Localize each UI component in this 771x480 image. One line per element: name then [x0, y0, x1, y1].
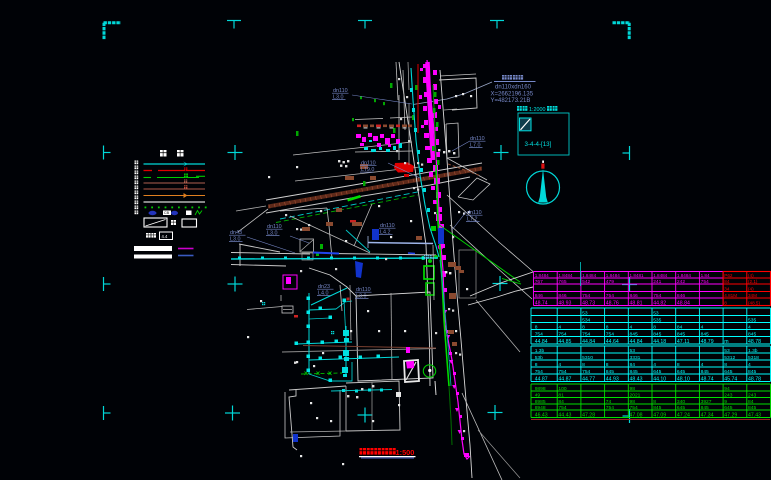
svg-text:845: 845 — [701, 369, 709, 375]
svg-text:845: 845 — [653, 331, 661, 337]
svg-text:845: 845 — [630, 331, 638, 337]
svg-text:8: 8 — [606, 362, 609, 368]
svg-text:8: 8 — [582, 324, 585, 330]
svg-text:48.76: 48.76 — [606, 300, 619, 306]
svg-text:340: 340 — [677, 399, 685, 405]
svg-text:4: 4 — [701, 324, 704, 330]
svg-text:84: 84 — [724, 279, 730, 284]
svg-text:845: 845 — [630, 369, 638, 375]
svg-text:48.84: 48.84 — [677, 300, 690, 306]
svg-text:m: m — [724, 339, 728, 345]
svg-text:754: 754 — [535, 331, 543, 337]
svg-text:4: 4 — [748, 362, 751, 368]
svg-text:74: 74 — [606, 399, 612, 405]
svg-text:49: 49 — [535, 392, 541, 398]
svg-text:846: 846 — [535, 293, 543, 299]
svg-text:767: 767 — [535, 279, 543, 285]
svg-text:479: 479 — [606, 279, 614, 285]
svg-text:48.10: 48.10 — [677, 376, 690, 382]
svg-text:1.8484: 1.8484 — [535, 273, 549, 278]
svg-text:8: 8 — [653, 399, 656, 405]
svg-text:754: 754 — [653, 293, 661, 299]
svg-text:48.73: 48.73 — [582, 300, 595, 306]
svg-text:846: 846 — [558, 293, 566, 299]
svg-text:8985: 8985 — [535, 399, 546, 405]
svg-text:44.84: 44.84 — [582, 339, 595, 345]
svg-text:645: 645 — [677, 405, 685, 411]
svg-text:1.8484: 1.8484 — [677, 273, 691, 278]
svg-text:5312: 5312 — [724, 355, 735, 361]
svg-text:1.84: 1.84 — [701, 273, 710, 278]
svg-text:8: 8 — [606, 324, 609, 330]
svg-text:34M: 34M — [748, 293, 757, 298]
svg-text:754: 754 — [582, 369, 590, 375]
svg-text:241: 241 — [653, 279, 661, 285]
svg-text:48.93: 48.93 — [558, 300, 571, 306]
svg-text:44.93: 44.93 — [606, 376, 619, 382]
svg-text:CB: CB — [164, 211, 170, 215]
svg-text:846: 846 — [677, 293, 685, 299]
svg-text:645: 645 — [724, 405, 732, 411]
svg-text:46.43: 46.43 — [535, 412, 548, 418]
svg-text:8948: 8948 — [535, 405, 546, 411]
svg-text:44.85: 44.85 — [558, 339, 571, 345]
svg-text:(4): (4) — [748, 273, 754, 278]
svg-text:44.77: 44.77 — [582, 376, 595, 382]
svg-text:242: 242 — [677, 279, 685, 285]
svg-text:44.64: 44.64 — [606, 339, 619, 345]
svg-text:44.43: 44.43 — [558, 412, 571, 418]
svg-text:47.43: 47.43 — [748, 412, 761, 418]
svg-text:34: 34 — [724, 286, 730, 291]
svg-text:4: 4 — [558, 362, 561, 368]
svg-text:846: 846 — [630, 293, 638, 299]
svg-text:845: 845 — [748, 369, 756, 375]
svg-text:8: 8 — [535, 324, 538, 330]
svg-text:3-4-4-[13]: 3-4-4-[13] — [525, 141, 552, 148]
svg-text:44.18: 44.18 — [653, 339, 666, 345]
svg-text:754: 754 — [582, 293, 590, 299]
svg-text:48.81: 48.81 — [630, 300, 643, 306]
svg-text:100: 100 — [558, 386, 566, 392]
svg-text:535: 535 — [653, 317, 661, 323]
svg-text:4.4: 4.4 — [162, 234, 168, 239]
svg-text:48.74: 48.74 — [535, 300, 548, 306]
svg-text:dn110xdn160: dn110xdn160 — [495, 85, 532, 91]
svg-text:53: 53 — [582, 310, 588, 316]
svg-text:4: 4 — [701, 362, 704, 368]
svg-text:8: 8 — [724, 362, 727, 368]
svg-text:5310: 5310 — [582, 355, 593, 361]
svg-text:754: 754 — [701, 279, 709, 285]
svg-text:48.74: 48.74 — [701, 376, 714, 382]
svg-text:243: 243 — [748, 392, 756, 398]
svg-text:53b: 53b — [535, 355, 543, 361]
svg-text:754: 754 — [606, 331, 614, 337]
svg-text:3331: 3331 — [630, 355, 641, 361]
svg-text:542: 542 — [582, 279, 590, 285]
svg-text:4: 4 — [558, 324, 561, 330]
svg-text:53: 53 — [653, 310, 659, 316]
svg-text:754: 754 — [558, 369, 566, 375]
svg-text:44.87: 44.87 — [558, 376, 571, 382]
svg-text:1.8484: 1.8484 — [606, 273, 620, 278]
svg-text:754: 754 — [630, 405, 638, 411]
svg-text:8: 8 — [724, 300, 727, 305]
svg-text:(4): (4) — [748, 286, 754, 291]
svg-text:81: 81 — [558, 392, 564, 398]
svg-text:845: 845 — [701, 331, 709, 337]
svg-text:1.8484: 1.8484 — [653, 273, 667, 278]
svg-text:48.78: 48.78 — [748, 339, 761, 345]
svg-text:94: 94 — [724, 386, 730, 392]
svg-text:44.84: 44.84 — [630, 339, 643, 345]
svg-text:47.34: 47.34 — [701, 412, 714, 418]
svg-text:754: 754 — [606, 405, 614, 411]
svg-text:47.09: 47.09 — [653, 412, 666, 418]
svg-text:845: 845 — [653, 405, 661, 411]
svg-text:645: 645 — [724, 369, 732, 375]
svg-text:8: 8 — [535, 362, 538, 368]
svg-text:1:2000: 1:2000 — [529, 107, 546, 113]
svg-text:98: 98 — [630, 399, 636, 405]
svg-text:765: 765 — [558, 279, 566, 285]
svg-text:1.8484: 1.8484 — [558, 273, 572, 278]
svg-text:845: 845 — [701, 405, 709, 411]
svg-text:47.11: 47.11 — [677, 339, 690, 345]
svg-text:44.84: 44.84 — [535, 339, 548, 345]
svg-text:1.8481: 1.8481 — [630, 273, 644, 278]
svg-text:1:500: 1:500 — [396, 448, 415, 457]
svg-text:8: 8 — [677, 362, 680, 368]
svg-text:1.3b: 1.3b — [748, 348, 758, 354]
svg-text:45.74: 45.74 — [724, 376, 737, 382]
svg-text:(48.5): (48.5) — [748, 300, 760, 305]
svg-text:4: 4 — [748, 324, 751, 330]
svg-text:47.28: 47.28 — [582, 412, 595, 418]
svg-text:8: 8 — [582, 362, 585, 368]
svg-text:754: 754 — [558, 331, 566, 337]
svg-text:535: 535 — [748, 317, 756, 323]
svg-text:48.43: 48.43 — [630, 376, 643, 382]
svg-text:53: 53 — [630, 348, 636, 354]
svg-text:754: 754 — [606, 293, 614, 299]
svg-text:845: 845 — [677, 331, 685, 337]
svg-text:P62: P62 — [724, 273, 733, 278]
svg-text:Y=482173.21B: Y=482173.21B — [491, 98, 531, 104]
svg-text:47.24: 47.24 — [677, 412, 690, 418]
svg-text:84: 84 — [748, 399, 754, 405]
svg-text:44.82: 44.82 — [653, 300, 666, 306]
svg-text:4: 4 — [630, 324, 633, 330]
svg-text:9: 9 — [724, 399, 727, 405]
svg-text:754: 754 — [535, 369, 543, 375]
svg-text:645: 645 — [653, 369, 661, 375]
svg-text:1.3b: 1.3b — [535, 348, 545, 354]
svg-text:44.87: 44.87 — [535, 376, 548, 382]
svg-text:53: 53 — [724, 348, 730, 354]
svg-text:98: 98 — [630, 386, 636, 392]
svg-text:4.81M: 4.81M — [724, 293, 737, 298]
svg-text:5318: 5318 — [748, 355, 759, 361]
svg-text:44.10: 44.10 — [653, 376, 666, 382]
svg-text:48.79: 48.79 — [701, 339, 714, 345]
svg-text:84: 84 — [558, 399, 564, 405]
svg-text:754: 754 — [582, 331, 590, 337]
svg-text:9898: 9898 — [535, 386, 546, 392]
svg-text:4: 4 — [653, 362, 656, 368]
svg-text:84: 84 — [630, 362, 636, 368]
svg-text:534: 534 — [582, 317, 590, 323]
svg-text:8: 8 — [653, 324, 656, 330]
svg-text:(2.1): (2.1) — [748, 279, 758, 284]
svg-text:243: 243 — [724, 392, 732, 398]
svg-text:1.8484: 1.8484 — [582, 273, 596, 278]
svg-text:645: 645 — [677, 369, 685, 375]
svg-text:845: 845 — [748, 331, 756, 337]
svg-text:X=2662196.135: X=2662196.135 — [491, 92, 534, 98]
svg-text:47.08: 47.08 — [630, 412, 643, 418]
svg-text:2021: 2021 — [630, 392, 641, 398]
svg-text:48.78: 48.78 — [748, 376, 761, 382]
svg-text:47.29: 47.29 — [724, 412, 737, 418]
svg-text:845: 845 — [606, 369, 614, 375]
svg-text:3927: 3927 — [701, 399, 712, 405]
svg-text:84: 84 — [677, 324, 683, 330]
svg-text:845: 845 — [748, 405, 756, 411]
svg-text:754: 754 — [558, 405, 566, 411]
